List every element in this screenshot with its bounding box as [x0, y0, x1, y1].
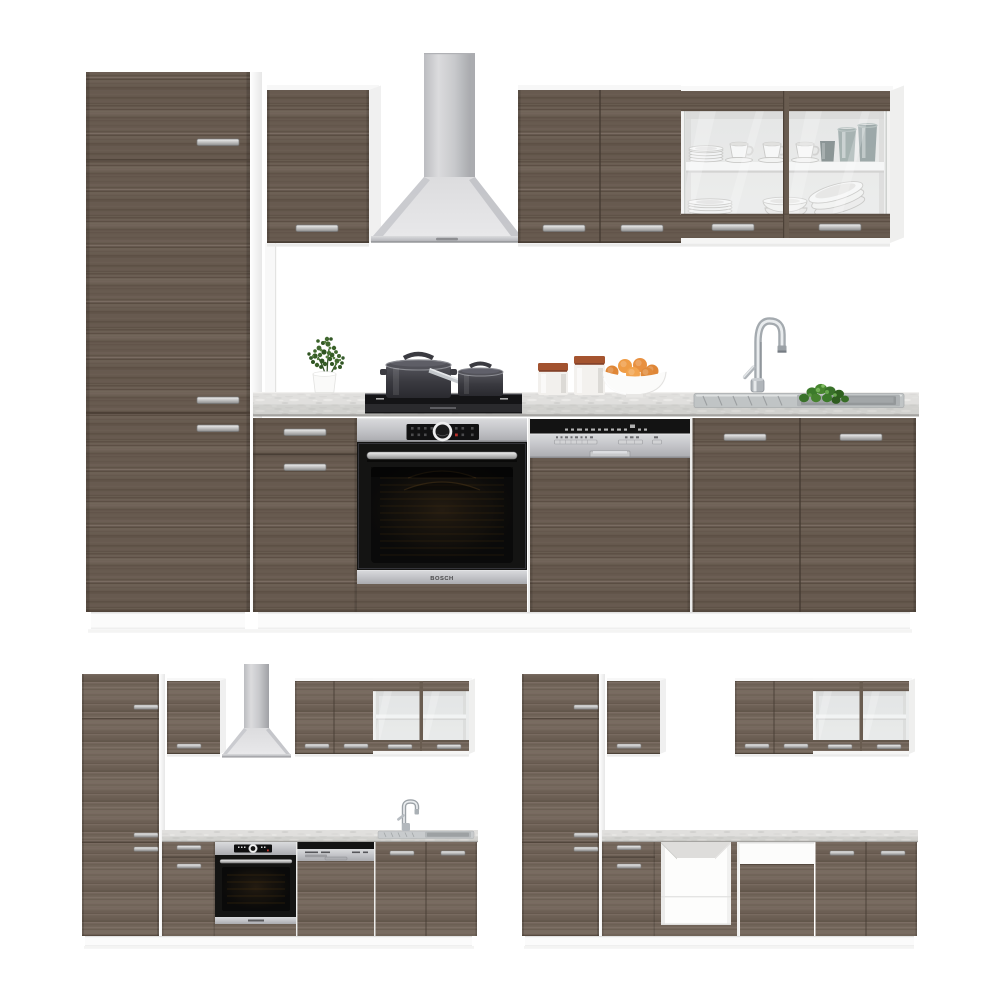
svg-text:BOSCH: BOSCH: [430, 576, 453, 582]
